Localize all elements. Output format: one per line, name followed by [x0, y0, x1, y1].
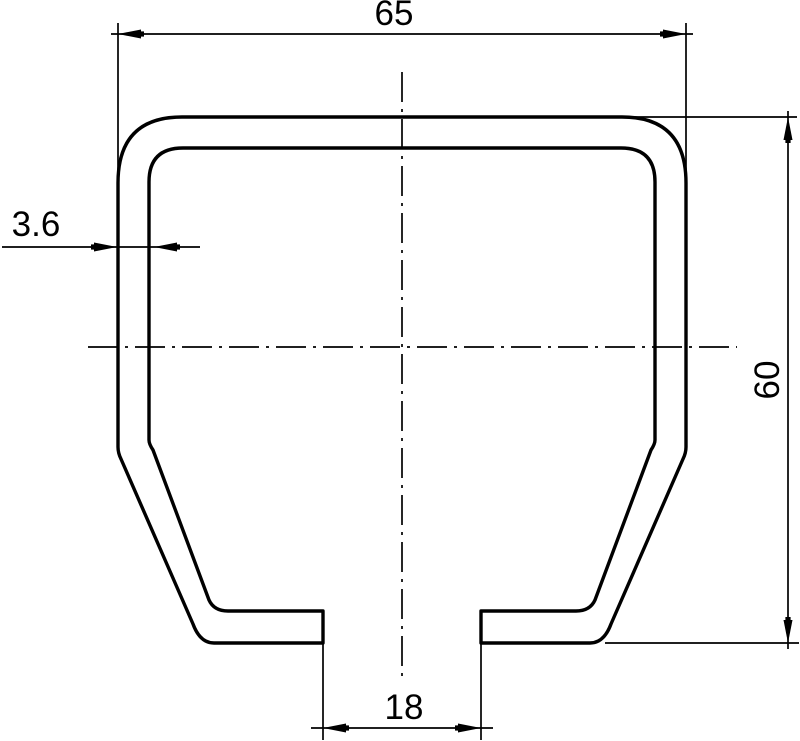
arrowhead-left-icon	[323, 724, 349, 733]
dim-wall-thickness: 3.6	[2, 205, 200, 252]
drawing-canvas: 65 3.6 60 18	[0, 0, 800, 741]
dim-label-slot-width: 18	[385, 688, 424, 727]
arrowhead-down-icon	[784, 617, 793, 643]
cross-section-drawing: 65 3.6 60 18	[0, 0, 800, 741]
arrowhead-right-icon	[91, 243, 117, 252]
arrowhead-left-icon	[118, 30, 144, 39]
dim-label-width-top: 65	[375, 0, 414, 33]
arrowhead-right-icon	[660, 30, 686, 39]
arrowhead-right-icon	[455, 724, 481, 733]
arrowhead-up-icon	[784, 117, 793, 143]
dim-label-wall-thickness: 3.6	[12, 205, 61, 244]
centerlines	[88, 72, 737, 679]
dim-label-height: 60	[748, 361, 787, 400]
arrowhead-left-icon	[154, 243, 180, 252]
